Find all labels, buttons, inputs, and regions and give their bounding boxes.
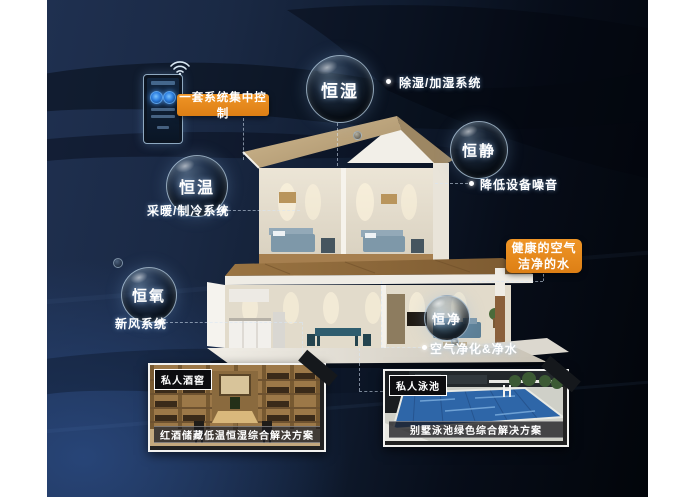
- connector-hengjing-clean: [381, 347, 421, 348]
- note-hengwen: 采暖/制冷系统: [147, 202, 229, 219]
- bubble-hengjing-clean-label: 恒净: [432, 309, 462, 328]
- wifi-icon: [169, 58, 191, 75]
- connector-hengyang: [165, 322, 302, 323]
- healthy-line1: 健康的空气: [511, 240, 576, 256]
- controller-knob-right: [163, 91, 176, 104]
- bubble-hengjing-clean: 恒净: [424, 295, 470, 341]
- photo-caption-pool: 别墅泳池绿色综合解决方案: [389, 421, 563, 438]
- controller-titlebar: [151, 81, 175, 85]
- bubble-hengshi: 恒湿: [306, 55, 374, 123]
- connector-dot: [422, 345, 427, 350]
- photo-card-wine-cellar: 私人酒窖 红酒储藏低温恒湿综合解决方案: [148, 363, 326, 452]
- controller-screen: [147, 78, 179, 140]
- connector-dot: [221, 208, 226, 213]
- controller-row: [157, 126, 169, 129]
- photo-caption-wine: 红酒储藏低温恒湿综合解决方案: [154, 426, 320, 443]
- bubble-hengwen-label: 恒温: [179, 174, 215, 198]
- photo-tag-wine: 私人酒窖: [154, 369, 212, 390]
- photo-card-pool: 私人泳池 别墅泳池绿色综合解决方案: [383, 369, 569, 447]
- decor-bubble: [353, 131, 362, 140]
- central-control-callout: 一套系统集中控制: [177, 94, 269, 116]
- bubble-hengjing-quiet: 恒静: [450, 121, 508, 179]
- central-control-label: 一套系统集中控制: [177, 89, 269, 121]
- bubble-hengshi-label: 恒湿: [321, 77, 359, 102]
- connector-hengshi: [337, 123, 338, 166]
- poster-frame: 一套系统集中控制 恒湿 除湿/加湿系统 恒静 降低设备噪音 恒温 采暖/制冷系统…: [0, 0, 700, 497]
- connector-healthy: [472, 281, 543, 282]
- connector-dot: [469, 181, 474, 186]
- connector-pool: [359, 348, 360, 391]
- bubble-hengyang-label: 恒氧: [132, 285, 166, 306]
- note-hengjing-quiet: 降低设备噪音: [480, 176, 558, 193]
- healthy-line2: 洁净的水: [518, 256, 570, 272]
- decor-bubble: [113, 258, 123, 268]
- connector-hengwen: [228, 210, 300, 211]
- connector-healthy-down: [381, 281, 382, 345]
- healthy-callout: 健康的空气 洁净的水: [506, 239, 582, 273]
- controller-row: [151, 115, 175, 118]
- connector-pool: [359, 391, 383, 392]
- note-hengshi: 除湿/加湿系统: [399, 74, 481, 91]
- infographic-canvas: 一套系统集中控制 恒湿 除湿/加湿系统 恒静 降低设备噪音 恒温 采暖/制冷系统…: [47, 0, 648, 497]
- connector-healthy: [543, 274, 544, 281]
- controller-knob-left: [150, 91, 163, 104]
- connector-control: [243, 118, 244, 160]
- bubble-hengjing-quiet-label: 恒静: [462, 140, 496, 161]
- connector-dot: [158, 320, 163, 325]
- note-hengjing-clean: 空气净化&净水: [430, 340, 518, 357]
- connector-hengjing: [435, 183, 468, 184]
- connector-dot: [386, 79, 391, 84]
- house-illustration: [195, 106, 577, 368]
- photo-tag-pool: 私人泳池: [389, 375, 447, 396]
- controller-row: [151, 108, 175, 111]
